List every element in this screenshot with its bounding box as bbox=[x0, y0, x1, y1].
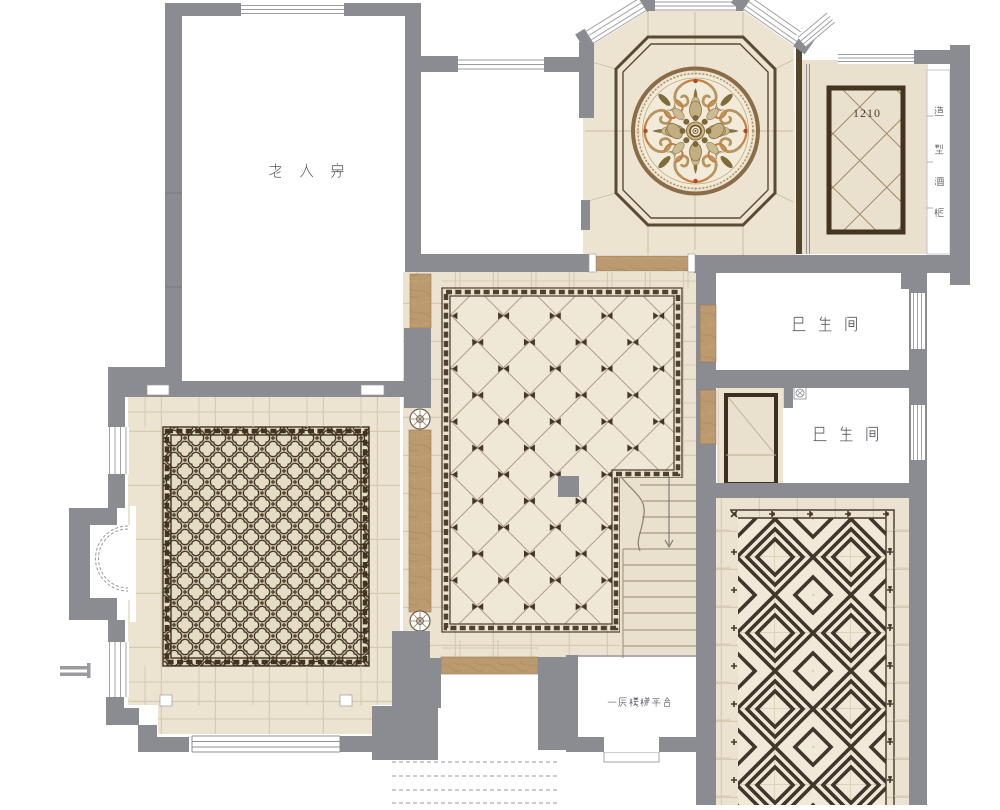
svg-text:1210: 1210 bbox=[853, 106, 881, 120]
